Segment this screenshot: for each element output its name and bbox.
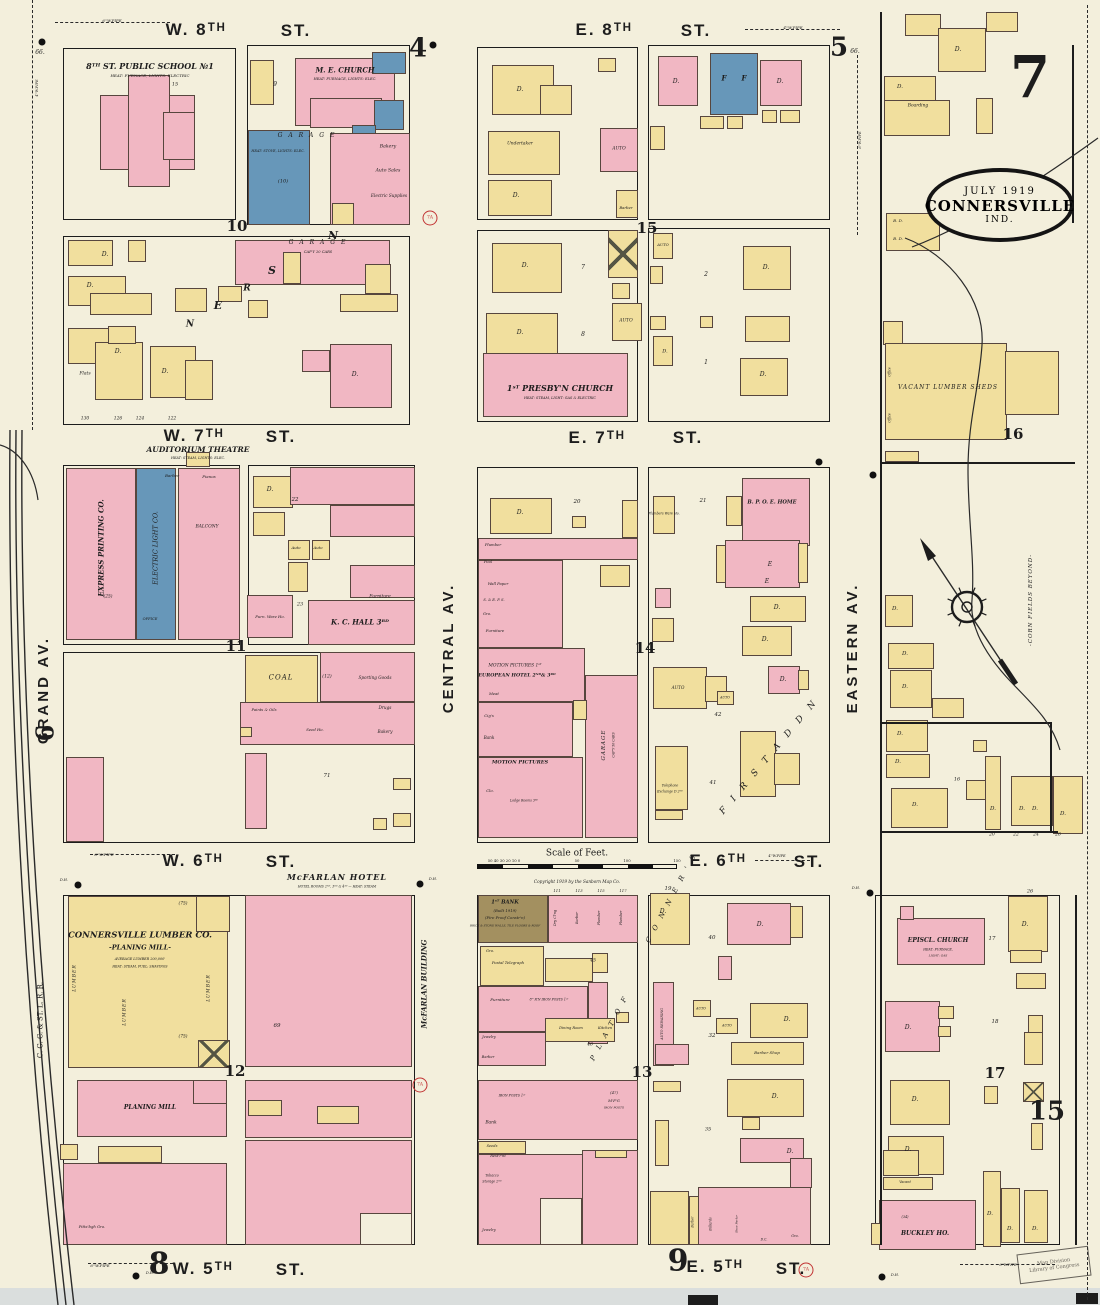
map-label: Rest'r'nt [490,1155,506,1159]
map-label: 50 [575,859,580,863]
map-label: 45 [590,960,596,965]
map-label: D. [1019,807,1025,813]
map-label: W. 7ᵀᴴ [164,427,225,445]
fire-hydrant-dot [816,459,823,466]
map-label: B. P. O. E. HOME [747,500,796,505]
map-label: D. [1007,1227,1013,1233]
fire-hydrant-dot [879,1274,886,1281]
building-footprint [290,467,415,505]
compass-spoke [948,599,954,601]
building-footprint [976,98,993,134]
compass-spoke [959,588,961,594]
map-label: HEAT: FURNACE, LIGHTS: ELEC. [314,78,377,82]
building-footprint [890,1080,950,1125]
map-label: Auto [292,546,301,550]
map-label: 71 [324,774,331,780]
building-footprint [885,595,913,627]
map-label: F [742,74,747,81]
map-label: 4''W.PIPE [36,79,40,96]
sheet-reference-mark: 7A [423,211,438,226]
map-label: D. [352,372,359,378]
map-label: D. [87,283,94,289]
building-footprint [488,180,552,216]
building-footprint [545,958,593,982]
map-label: 21 [700,499,707,505]
map-label: 4''W.PIPE [783,26,802,30]
building-footprint [608,230,638,278]
map-label: 9 [668,1245,689,1277]
building-footprint [360,1213,412,1245]
building-footprint [253,512,285,536]
map-label: HEAT: FURNACE, [923,948,953,951]
map-label: 6''W.PIPE [94,853,113,857]
map-label: Plumber [598,911,602,926]
building-footprint [108,326,136,344]
map-label: K. C. HALL 3ᴿᴰ [331,618,389,625]
map-label: 1ˢᵀ BANK [491,900,519,905]
map-label: S. & E. P. S. [483,599,504,603]
map-label: D. [912,1097,919,1103]
building-footprint [790,1158,812,1188]
map-label: COAL [269,674,294,681]
map-label: AUTO [619,320,632,325]
map-line [881,722,1051,724]
map-label: D. [905,1025,912,1031]
map-label: Plumber [620,911,624,926]
building-footprint [984,1086,998,1104]
map-label: -PLANING MILL- [109,945,171,952]
compass-rose [1000,660,1016,684]
map-label: Barber Shop [754,1051,780,1055]
map-label: CAP'Y 50 CARS [612,732,615,757]
building-footprint [330,505,415,537]
map-label: AUTO [722,1024,732,1027]
map-label: Undertaker [507,143,533,148]
map-label: 16 [1003,427,1024,443]
map-label: 6''W.PIPE [102,19,121,23]
map-label: Barber [619,206,632,210]
building-footprint [302,350,330,372]
map-label: 1ˢᵀ PRESBY'N CHURCH [507,384,613,392]
map-label: 117 [619,889,626,893]
map-label: D. [162,369,169,375]
building-footprint [1016,973,1046,989]
map-label: 26 [1055,834,1061,839]
map-label: HEAT: STEAM, LIGHTS: ELEC. [171,457,225,461]
map-label: D. [784,1017,791,1023]
building-footprint [393,778,411,790]
map-label: IRON POSTS 1ˢᵀ [499,1094,526,1097]
building-footprint [240,727,252,737]
compass-spoke [973,621,975,627]
building-footprint [742,1117,760,1130]
compass-spoke [981,599,987,601]
map-label: W. 5ᵀᴴ [173,1260,234,1278]
building-footprint [196,896,230,932]
map-label: W. 8ᵀᴴ [166,21,227,39]
map-label: Dining Room [559,1027,583,1031]
map-label: 7 [581,265,585,271]
building-footprint [175,288,207,312]
building-footprint [650,316,666,330]
building-footprint [600,565,630,587]
map-label: D. [902,652,908,658]
map-label: D. [777,79,784,85]
building-footprint [780,110,800,123]
building-footprint [340,294,398,312]
building-footprint [884,76,936,102]
map-label: Tobacco [485,1174,498,1177]
map-label: Bakery [378,730,393,734]
map-label: 5 [830,34,848,61]
building-footprint [883,1150,919,1176]
map-label: Meat [489,692,499,696]
building-footprint [250,60,274,105]
map-label: D. [955,47,962,53]
building-footprint [582,1150,638,1245]
map-label: Bank [484,736,495,740]
map-label: 26 [1027,889,1033,894]
building-footprint [798,543,808,583]
building-footprint [612,283,630,299]
building-footprint [283,252,301,284]
building-footprint [98,1146,162,1163]
scan-edge-strip [0,1288,1100,1305]
map-label: D. [1060,812,1066,818]
compass-rose [952,592,982,622]
map-label: ELECTRIC LIGHT CO. [153,511,160,585]
building-footprint [393,813,411,827]
map-label: BRICK & STONE WALLS, TILE FLOORS & ROOF [470,925,540,928]
map-label: Telephone [662,784,679,787]
map-label: D. [513,193,520,199]
building-footprint [1053,776,1083,834]
map-label: HEAT: STEAM, LIGHT: GAS & ELECTRIC [524,397,596,401]
building-footprint [891,788,948,828]
map-label: 10 [227,219,248,235]
map-label: EASTERN AV. [845,583,861,714]
map-label: Drugs [379,706,392,710]
map-label: D. [987,1212,993,1218]
map-label: PLANING MILL [124,1105,176,1111]
map-label: 41 [710,781,717,787]
map-label: Jewelry [482,1229,496,1233]
map-label: 6 [32,725,57,742]
building-footprint [310,98,382,128]
map-label: OFFICE [143,618,158,622]
map-label: D. [660,909,667,915]
building-footprint [879,1200,976,1250]
map-label: 6''W.PIPE [90,1264,109,1268]
map-label: D. [1032,807,1038,813]
map-label: MOTION PICTURES 1ˢᵀ [488,665,541,670]
map-label: Gro. [483,612,491,616]
map-label: D.H. [891,1274,899,1278]
building-footprint [478,1080,638,1140]
map-label: (75) [178,1036,187,1041]
map-label: Copyright 1919 by the Sanborn Map Co. [534,880,620,884]
building-footprint [63,1163,227,1245]
fire-hydrant-dot [39,39,46,46]
map-label: (12) [322,676,331,681]
building-footprint [798,670,809,690]
building-footprint [317,1106,359,1124]
map-label: 7 [1010,48,1050,109]
map-label: Electric Supplies [371,194,407,198]
map-label: EXPRESS PRINTING CO. [97,499,104,596]
map-label: D. [522,263,529,269]
building-footprint [1024,1032,1043,1065]
building-footprint [488,131,560,175]
map-label: Kitchen [598,1027,612,1031]
map-line [1075,895,1077,1245]
map-label: 6''W.PIPE [859,131,863,148]
map-label: AUTO [696,1007,706,1010]
map-label: D. [1032,1227,1038,1233]
building-footprint [595,1150,627,1158]
map-label: Storage 2ᴺᴰ [482,1180,501,1183]
map-label: 23 [297,602,303,607]
map-label: Gro. [791,1235,798,1239]
building-footprint [885,451,919,462]
map-label: 4 [409,35,427,62]
map-label: Pianos [202,475,215,479]
map-label: AUDITORIUM THEATRE [146,446,249,454]
map-label: BUCKLEY HO. [901,1231,949,1237]
building-footprint [573,700,587,720]
map-label: D. [1022,922,1029,928]
map-label: 8'' R'N IRON POSTS 1ˢᵀ [530,998,569,1001]
map-label: ST. [776,1260,807,1278]
building-footprint [985,756,1001,830]
building-footprint [128,240,146,262]
map-label: 35 [705,1127,711,1132]
library-stamp: Map Division Library of Congress [1016,1246,1091,1285]
map-label: ST. [681,22,712,40]
map-label: Shoe Parlor [735,1215,738,1233]
map-label: Cig's [484,714,494,718]
map-label: HEAT: FURNACE, LIGHTS: ELECTRIC [110,74,189,78]
building-footprint [622,500,638,538]
map-label: AUTO [612,148,625,153]
building-footprint [718,956,732,980]
map-label: Auto Sales [376,170,401,175]
map-label: 100 [623,859,630,863]
map-label: Barber [576,912,580,924]
map-label: Office [888,367,891,377]
fire-hydrant-dot [430,42,437,49]
building-footprint [372,52,406,74]
building-footprint [890,670,932,708]
map-label: Pool [484,560,492,564]
map-label: D. [902,685,908,691]
map-label: B. D. [893,237,903,241]
building-footprint [973,740,987,752]
building-footprint [245,753,267,829]
building-footprint [478,702,573,757]
map-label: HEAT: STEAM, FUEL: SHAVINGS [112,965,167,968]
map-label: D. [662,349,667,354]
building-footprint [727,1079,804,1117]
map-label: D.C. [761,1238,768,1241]
map-label: G A R A G E [278,133,337,139]
map-label: AUTO [657,243,669,247]
building-footprint [365,264,391,294]
map-label: Furniture [486,629,505,633]
map-label: 13 [632,1065,653,1081]
map-linework [927,549,1007,670]
map-label: Barber [482,1056,495,1060]
compass-spoke [973,588,975,594]
map-label: 8 [581,332,585,338]
map-label: Exchange D 2ᴺᴰ [657,790,683,793]
map-label: D. [115,349,122,355]
building-footprint [655,1044,689,1065]
map-label: S [268,265,276,277]
building-footprint [90,293,152,315]
map-label: 14 [635,641,656,657]
map-linework [10,430,58,1305]
building-footprint [332,203,354,225]
map-label: G A R A G E [289,240,348,246]
building-footprint [653,1081,681,1092]
map-label: E [768,562,772,568]
map-label: AUTO [720,696,730,699]
map-label: LUMBER [74,964,79,992]
map-label: 46 [587,1044,593,1049]
map-line [880,12,882,1245]
map-label: 18 [992,1020,999,1026]
map-label: (Built 1919) [493,909,516,913]
building-footprint [938,28,986,72]
map-line [1050,722,1052,832]
building-footprint [1024,1190,1048,1243]
building-footprint [1005,351,1059,415]
map-label: MOTION PICTURES [492,760,548,765]
map-city: CONNERSVILLE [925,197,1075,215]
building-footprint [650,1191,689,1245]
building-footprint [178,468,240,640]
map-label: Seeds [487,1145,498,1149]
map-label: LUMBER [124,998,129,1026]
map-label: ST. [673,429,704,447]
water-pipe-line [32,0,33,430]
map-label: D. [673,79,680,85]
building-footprint [938,1026,951,1037]
map-linework [16,430,66,1305]
building-footprint [750,1003,808,1038]
building-footprint [727,116,743,129]
fire-hydrant-dot [75,882,82,889]
building-footprint [983,1171,1001,1247]
map-label: Office [888,413,891,423]
map-label: HEAT: STOVE, LIGHTS: ELEC. [251,150,304,154]
building-footprint [725,540,800,588]
building-footprint [330,344,392,408]
block-outline [648,228,830,422]
map-label: 115 [597,889,604,893]
map-label: D. [762,637,769,643]
map-label: LUMBER [208,974,213,1002]
fire-hydrant-dot [133,1273,140,1280]
building-footprint [478,1141,526,1154]
map-label: IRON POSTS [604,1106,624,1109]
map-label: ST. [794,853,825,871]
building-footprint [655,746,688,810]
map-label: 126 [114,418,123,423]
map-label: 24 [1033,834,1039,839]
map-line [880,462,1075,464]
map-label: 32 [709,1034,716,1040]
map-label: M. E. CHURCH [315,66,374,73]
map-label: R [243,284,250,293]
building-footprint [350,565,415,598]
building-footprint [1010,950,1042,963]
map-label: (75) [178,903,187,908]
map-label: E. 7ᵀᴴ [568,429,625,447]
map-label: 22 [1013,834,1019,839]
building-footprint [886,754,930,778]
building-footprint [478,560,563,648]
map-label: B. D. [893,219,903,223]
map-label: Dry Cl'ng [554,910,558,926]
building-footprint [1001,1188,1020,1243]
compass-rose [962,602,972,612]
map-label: ST. [276,1261,307,1279]
map-date: JULY 1919 [964,186,1036,197]
sanborn-map-sheet: JULY 1919 CONNERSVILLE IND. Map Division… [0,0,1100,1305]
map-label: 130 [81,418,90,423]
map-label: 17 [985,1066,1006,1082]
building-footprint [986,12,1018,32]
building-footprint [66,757,104,842]
building-footprint [572,516,586,528]
map-label: Plumbers Ware Ho. [648,512,679,515]
building-footprint [478,538,638,560]
map-label: Sporting Goods [358,676,391,680]
map-label: E. 8ᵀᴴ [575,21,632,39]
map-label: 12 [225,1064,246,1080]
map-label: D. [757,922,764,928]
building-footprint [726,496,742,526]
compass-spoke [981,613,987,615]
building-footprint [548,895,638,943]
building-footprint [932,698,964,718]
map-label: VACANT LUMBER SHEDS [898,385,998,391]
building-footprint [790,906,803,938]
building-footprint [886,720,928,752]
map-label: D. [102,252,109,258]
building-footprint [185,360,213,400]
map-label: Furniture [490,998,510,1002]
building-footprint [888,643,934,669]
map-label: Bank [485,1122,496,1127]
map-label: D. [897,85,903,91]
building-footprint [655,1120,669,1166]
map-label: Postal Telegraph [492,961,524,965]
map-label: D. [990,807,996,813]
map-label: 17 [989,937,996,943]
map-label: Furniture [369,596,391,601]
map-label: AUTO REPAIRING [661,1008,665,1040]
map-label: 4''W.PIPE [768,855,785,859]
compass-rose [920,538,936,561]
map-label: LIGHT: GAS [929,954,948,957]
map-label: Gro. [486,949,494,953]
map-state: IND. [985,215,1014,225]
map-label: Barber [691,1216,694,1227]
map-label: 16 [954,777,960,782]
